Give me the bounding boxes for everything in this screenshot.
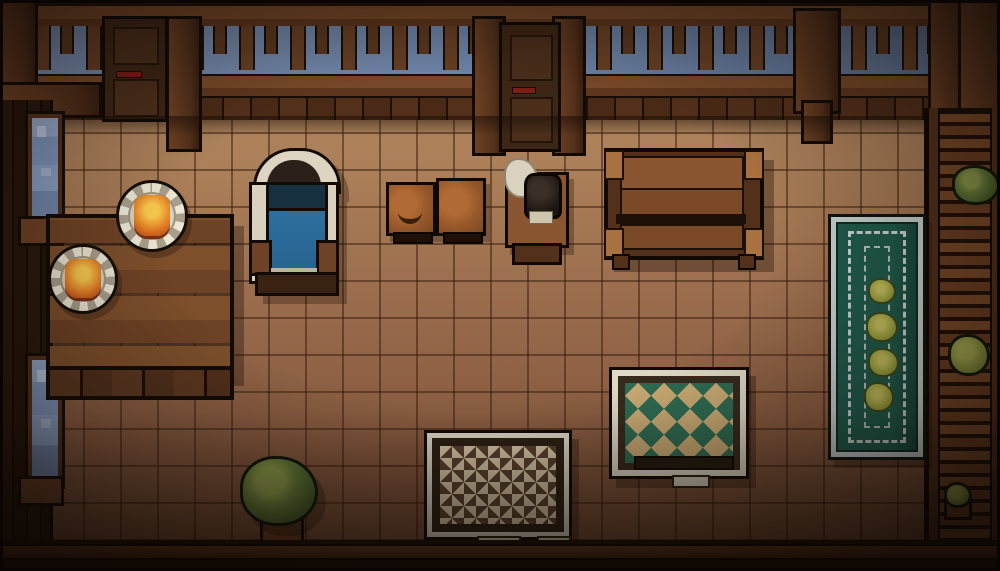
bench-corner <box>604 150 624 180</box>
game-room-scene <box>0 0 1000 571</box>
window-glint <box>41 168 51 176</box>
bed-wood-arm <box>316 240 339 276</box>
window-glint <box>41 419 51 429</box>
door-left[interactable] <box>102 16 168 122</box>
crate-stool-2[interactable] <box>436 178 486 236</box>
fire-plate-1[interactable] <box>116 180 188 252</box>
crate-stool-1[interactable] <box>386 182 436 236</box>
shelf-bush-top[interactable] <box>952 165 1000 205</box>
wall-floor-shadow <box>0 116 1000 136</box>
bench-corner <box>744 150 764 180</box>
teal-runner-rug <box>828 214 926 460</box>
door-latch <box>512 87 536 94</box>
shelf-bush-mid[interactable] <box>948 334 990 376</box>
rug-flower <box>864 382 894 412</box>
window-glint <box>37 370 46 382</box>
nightstand-front <box>512 243 562 265</box>
door-panel <box>113 27 159 65</box>
diamond-rug <box>609 367 749 479</box>
rug-frame <box>432 438 564 532</box>
bed[interactable] <box>249 148 339 290</box>
rug-flower <box>868 278 896 304</box>
bed-base <box>255 272 339 296</box>
shelf-rail <box>927 108 940 544</box>
rug-diamond-field <box>625 383 733 463</box>
checker-rug <box>424 430 572 540</box>
post-d <box>793 8 841 114</box>
bench-leg <box>738 254 756 270</box>
fire-plate-2[interactable] <box>48 244 118 314</box>
table-apron <box>46 366 234 400</box>
bottom-wall <box>0 540 1000 571</box>
potted-plant[interactable] <box>240 456 318 526</box>
paper-label <box>529 211 553 224</box>
bowl-mark <box>398 199 422 223</box>
rug-flower <box>868 348 899 377</box>
crate-foot <box>443 232 482 244</box>
small-plant[interactable] <box>944 482 972 508</box>
crate-foot <box>393 232 432 244</box>
window-sill <box>18 476 64 506</box>
flame-icon <box>134 195 171 236</box>
baseboard-beam <box>0 544 1000 560</box>
rug-tab <box>672 475 710 488</box>
rug-checker-field <box>440 446 556 524</box>
bench-leg <box>612 254 630 270</box>
bench[interactable] <box>604 148 764 260</box>
flame-icon <box>65 259 101 299</box>
window-glint <box>37 126 46 136</box>
bench-gap <box>616 214 746 224</box>
door-panel <box>510 35 553 81</box>
bench-plank <box>620 188 744 216</box>
bench-plank <box>620 156 744 190</box>
bed-wood-arm <box>249 240 272 276</box>
rug-flower <box>866 312 898 342</box>
rug-bottom-bar <box>634 456 734 470</box>
door-latch <box>116 71 142 78</box>
rug-field <box>836 222 918 452</box>
jug <box>524 173 562 219</box>
door-panel <box>113 79 159 117</box>
bed-head-shade <box>266 182 328 211</box>
window-upper <box>28 114 62 226</box>
bench-plank <box>620 224 744 250</box>
